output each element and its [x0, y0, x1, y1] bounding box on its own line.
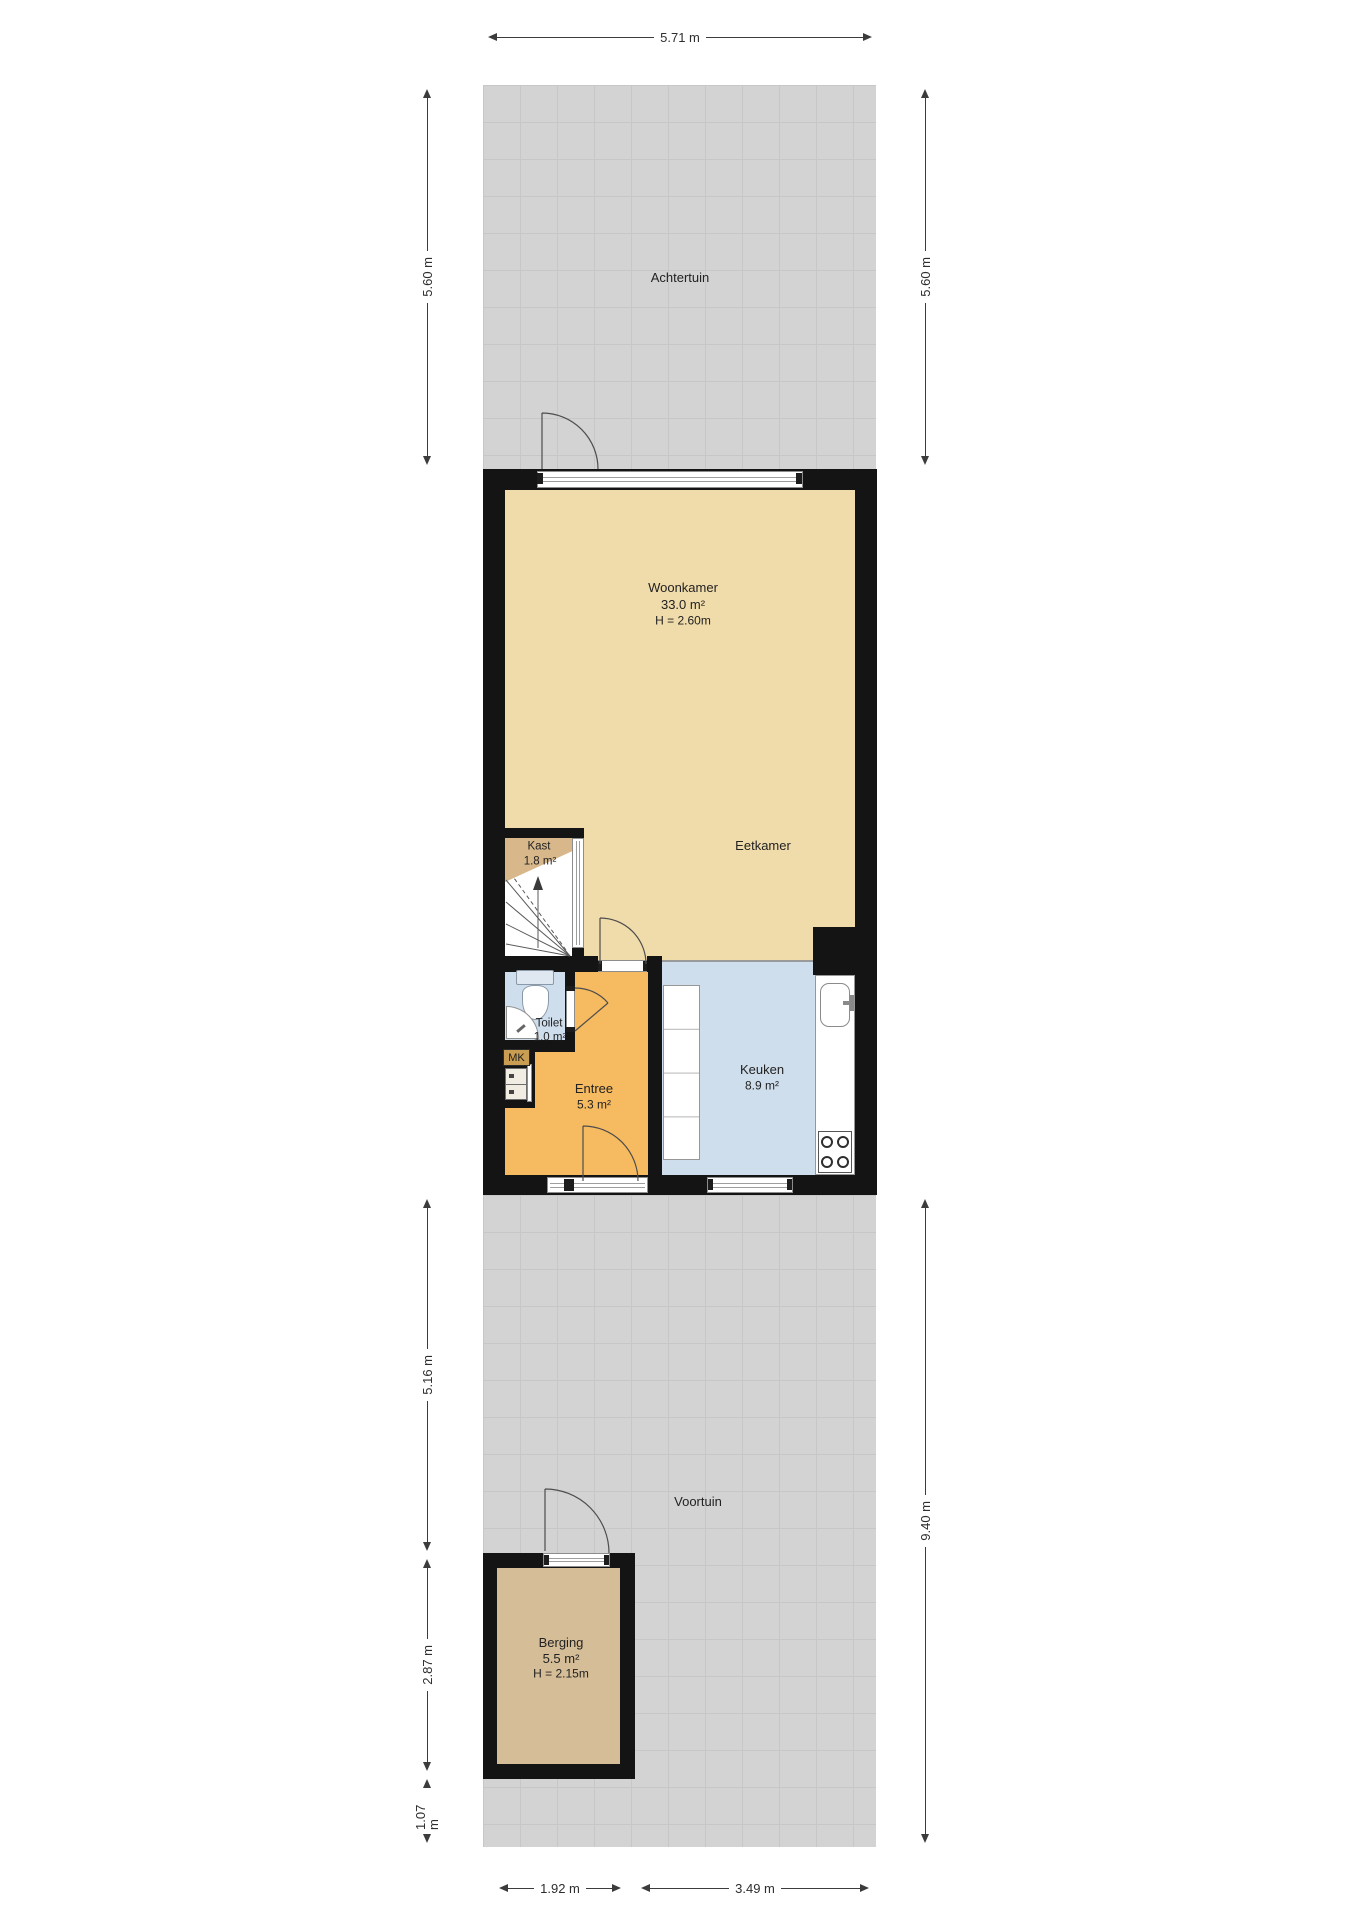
dim-berging-depth-left: 2.87 m — [419, 1555, 435, 1775]
frame-cap — [598, 961, 602, 971]
dim-plot-width-top: 5.71 m — [484, 29, 876, 45]
toilet-area: 1.0 m² — [534, 1032, 567, 1045]
burner-icon — [821, 1136, 833, 1148]
meterkast-label-box: MK — [503, 1049, 530, 1066]
dim-label: 1.92 m — [534, 1882, 586, 1895]
dim-label: 5.60 m — [919, 251, 932, 303]
dim-label: 9.40 m — [919, 1495, 932, 1547]
dim-label: 1.07 m — [414, 1786, 440, 1836]
toilet-door-frame — [566, 986, 575, 1032]
berging-door-frame — [543, 1553, 610, 1567]
dim-berging-width-bottom: 1.92 m — [495, 1880, 625, 1896]
stairs-door-panel — [572, 838, 584, 948]
chimney-block — [813, 927, 855, 975]
dim-label: 2.87 m — [421, 1639, 434, 1691]
meterkast-label: MK — [508, 1052, 525, 1064]
room-entree-a — [575, 970, 648, 1175]
dim-berging-to-edge-left: 1.07 m — [419, 1775, 435, 1847]
berging-area: 5.5 m² — [543, 1652, 580, 1666]
dim-label: 5.16 m — [421, 1349, 434, 1401]
meter-cabinet-icon — [505, 1068, 527, 1100]
woonkamer-keuken-boundary — [662, 960, 813, 962]
kast-top-wall — [505, 828, 584, 838]
back-garden-label: Achtertuin — [651, 271, 710, 285]
entree-keuken-wall — [648, 958, 662, 1195]
kast-area: 1.8 m² — [524, 856, 557, 869]
frame-cap — [537, 473, 543, 484]
toilet-label: Toilet — [536, 1018, 563, 1031]
eetkamer-label: Eetkamer — [735, 839, 791, 853]
burner-icon — [821, 1156, 833, 1168]
front-door-divider — [564, 1179, 574, 1191]
woonkamer-ceiling: H = 2.60m — [655, 614, 711, 627]
dim-voortuin-depth-right: 9.40 m — [917, 1195, 933, 1847]
frame-cap — [566, 1027, 575, 1032]
dim-remaining-width-bottom: 3.49 m — [637, 1880, 873, 1896]
dim-achtertuin-depth-right: 5.60 m — [917, 85, 933, 469]
room-entree-b — [535, 1050, 575, 1175]
faucet-icon — [850, 995, 854, 1011]
frame-cap — [796, 473, 802, 484]
entree-area: 5.3 m² — [577, 1098, 611, 1111]
kitchen-window — [707, 1177, 793, 1193]
front-garden-label: Voortuin — [674, 1495, 722, 1509]
frame-cap — [544, 1555, 549, 1565]
woonkamer-label: Woonkamer — [648, 581, 718, 595]
frame-cap — [643, 961, 647, 971]
frame-cap — [708, 1179, 713, 1190]
dim-label: 3.49 m — [729, 1882, 781, 1895]
woonkamer-doorway — [598, 960, 647, 972]
berging-label: Berging — [539, 1636, 584, 1650]
frame-cap — [787, 1179, 792, 1190]
burner-icon — [837, 1156, 849, 1168]
kast-label: Kast — [527, 841, 550, 854]
kitchen-sink-icon — [820, 983, 850, 1027]
keuken-label: Keuken — [740, 1063, 784, 1077]
stove-icon — [818, 1131, 852, 1173]
frame-cap — [566, 986, 575, 991]
toilet-tank-icon — [516, 970, 554, 985]
dim-house-to-berging-left: 5.16 m — [419, 1195, 435, 1555]
room-entree-c — [505, 1108, 535, 1175]
frame-cap — [604, 1555, 609, 1565]
dim-achtertuin-depth-left: 5.60 m — [419, 85, 435, 469]
burner-icon — [837, 1136, 849, 1148]
dim-label: 5.71 m — [654, 31, 706, 44]
entree-label: Entree — [575, 1082, 613, 1096]
floor-plan: MK Achtertuin Woonkamer 33.0 m² H = 2.60 — [0, 0, 1358, 1920]
back-window-door-frame — [537, 471, 803, 488]
kitchen-cabinets-icon — [663, 985, 700, 1160]
dim-label: 5.60 m — [421, 251, 434, 303]
meterkast-door — [527, 1064, 532, 1102]
woonkamer-area: 33.0 m² — [661, 598, 705, 612]
front-door-frame — [547, 1177, 648, 1193]
berging-ceiling: H = 2.15m — [533, 1667, 589, 1680]
keuken-area: 8.9 m² — [745, 1079, 779, 1092]
